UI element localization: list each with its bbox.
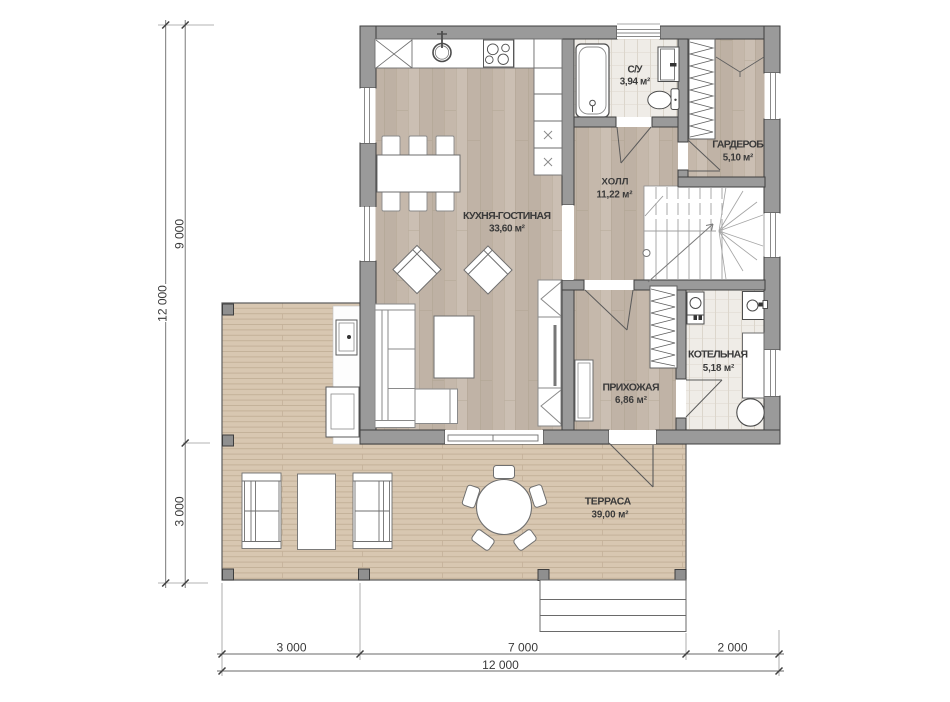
svg-text:7 000: 7 000: [508, 641, 538, 655]
svg-text:33,60 м²: 33,60 м²: [489, 224, 526, 235]
svg-text:5,10 м²: 5,10 м²: [723, 153, 754, 164]
svg-text:3 000: 3 000: [173, 496, 187, 526]
svg-text:С/У: С/У: [628, 65, 644, 76]
svg-text:2 000: 2 000: [717, 641, 747, 655]
svg-text:КОТЕЛЬНАЯ: КОТЕЛЬНАЯ: [688, 349, 748, 361]
svg-text:ХОЛЛ: ХОЛЛ: [602, 177, 629, 188]
svg-text:ПРИХОЖАЯ: ПРИХОЖАЯ: [603, 382, 660, 394]
svg-text:12 000: 12 000: [482, 658, 519, 672]
svg-text:39,00 м²: 39,00 м²: [592, 510, 630, 521]
svg-text:5,18 м²: 5,18 м²: [703, 363, 735, 374]
svg-text:6,86 м²: 6,86 м²: [615, 395, 648, 406]
svg-text:ТЕРРАСА: ТЕРРАСА: [585, 496, 632, 508]
svg-text:ГАРДЕРОБ: ГАРДЕРОБ: [712, 139, 764, 151]
svg-text:3,94 м²: 3,94 м²: [620, 77, 651, 88]
svg-text:3 000: 3 000: [276, 641, 306, 655]
svg-text:9 000: 9 000: [173, 219, 187, 249]
svg-text:11,22 м²: 11,22 м²: [597, 190, 634, 201]
svg-text:КУХНЯ-ГОСТИНАЯ: КУХНЯ-ГОСТИНАЯ: [463, 210, 551, 222]
svg-text:12 000: 12 000: [156, 285, 170, 322]
